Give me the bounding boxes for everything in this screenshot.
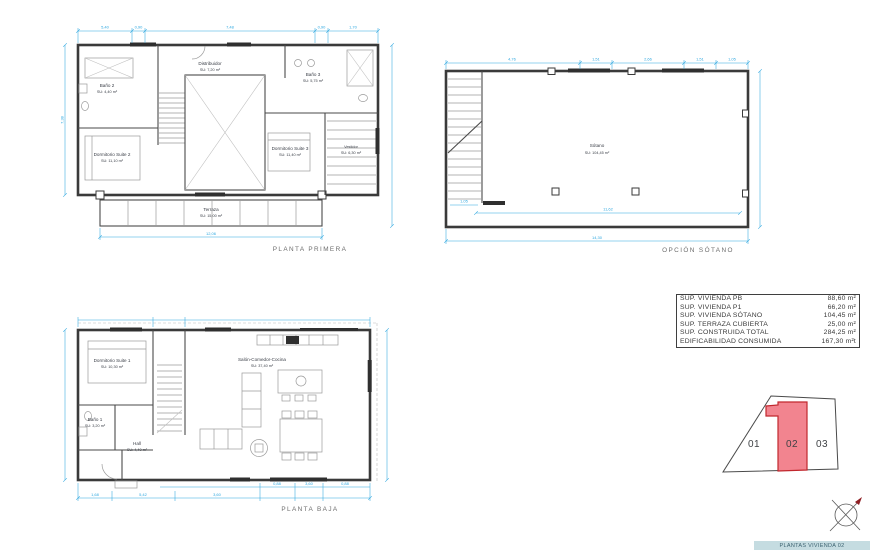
room-name: Dormitorio Suite 1 <box>94 358 131 363</box>
highlighted-plot-02 <box>766 402 807 471</box>
dim-label: 1,05 <box>728 57 737 62</box>
interior-walls <box>78 45 378 195</box>
dim-label: 7,38 <box>60 115 65 124</box>
dim-label: 0,88 <box>341 481 350 486</box>
room-area: SU: 15,00 m² <box>200 214 223 218</box>
dim-label: 12,06 <box>206 231 217 236</box>
structural-columns <box>548 68 749 197</box>
plot-01-label: 01 <box>748 439 760 450</box>
compass-rose <box>830 497 862 531</box>
window-lintels <box>130 43 380 197</box>
room-name: Distribuidor <box>198 61 222 66</box>
table-row: SUP. CONSTRUIDA TOTAL 284,25 m² <box>677 329 860 338</box>
room-area: SU: 10,30 m² <box>101 365 124 369</box>
room-area: SU: 4,40 m² <box>127 448 148 452</box>
dim-label: 3,60 <box>213 492 222 497</box>
row-value: 104,45 m² <box>809 312 859 321</box>
dim-label: 1,51 <box>592 57 601 62</box>
room-name: Salón-Comedor-Cocina <box>238 357 286 362</box>
room-area: SU: 104,45 m² <box>585 151 610 155</box>
dimension-lines <box>63 28 394 240</box>
room-name: Dormitorio Suite 2 <box>94 152 131 157</box>
dim-label: 7,48 <box>226 25 235 30</box>
plot-02-label: 02 <box>786 439 798 450</box>
row-value: 88,60 m² <box>809 295 859 304</box>
sheet-title-bar: PLANTAS VIVIENDA 02 <box>754 541 870 550</box>
dim-label: 2,66 <box>644 57 653 62</box>
plot-map-drawing: 01 02 03 <box>716 390 866 505</box>
dim-label: 14,30 <box>592 235 603 240</box>
row-label: SUP. VIVIENDA P1 <box>677 304 810 313</box>
kitchen-counter <box>257 335 338 345</box>
row-label: SUP. VIVIENDA SÓTANO <box>677 312 810 321</box>
table-row: SUP. VIVIENDA SÓTANO 104,45 m² <box>677 312 860 321</box>
room-area: SU: 5,75 m² <box>303 79 324 83</box>
opcion-sotano-drawing: 4,76 1,51 2,66 1,51 1,05 14,30 11,62 1,0… <box>440 55 770 260</box>
table-row: SUP. TERRAZA CUBIERTA 25,00 m² <box>677 321 860 330</box>
double-height-void <box>185 75 265 190</box>
row-value: 66,20 m² <box>809 304 859 313</box>
entry-porch <box>102 464 137 488</box>
plan-planta-primera: 5,40 0,90 7,48 0,90 1,70 7,38 12,06 Baño… <box>55 18 430 258</box>
kitchen-island <box>278 370 322 401</box>
room-area: SU: 7,20 m² <box>200 68 221 72</box>
dim-label: 1,05 <box>460 199 469 204</box>
row-value: 167,30 m²t <box>809 338 859 347</box>
dim-label: 1,70 <box>349 25 358 30</box>
room-name: Sótano <box>590 143 605 148</box>
table-row: EDIFICABILIDAD CONSUMIDA 167,30 m²t <box>677 338 860 347</box>
row-label: SUP. TERRAZA CUBIERTA <box>677 321 810 330</box>
dim-label: 3,60 <box>305 481 314 486</box>
row-value: 284,25 m² <box>809 329 859 338</box>
door-swing <box>192 46 205 59</box>
roof-overhang-outline <box>78 323 377 483</box>
row-label: EDIFICABILIDAD CONSUMIDA <box>677 338 810 347</box>
bathroom2-fixtures <box>79 84 89 111</box>
stairs-icon <box>448 79 505 205</box>
bed-suite2 <box>85 136 140 180</box>
interior-walls <box>78 330 185 480</box>
stairs-icon <box>158 93 185 143</box>
outer-walls <box>78 45 378 195</box>
room-name: Baño 1 <box>88 417 103 422</box>
dim-label: 1,68 <box>91 492 100 497</box>
table-row: SUP. VIVIENDA PB 88,60 m² <box>677 295 860 304</box>
bed-suite3 <box>268 133 310 171</box>
dimension-labels: 5,40 0,90 7,48 0,90 1,70 7,38 12,06 <box>60 25 358 237</box>
plan-title-sotano: OPCIÓN SÓTANO <box>662 245 734 254</box>
room-labels: Sótano SU: 104,45 m² <box>585 143 610 155</box>
room-name: Baño 3 <box>306 72 321 77</box>
sheet-title: PLANTAS VIVIENDA 02 <box>780 543 845 549</box>
room-name: Terraza <box>203 207 219 212</box>
room-area: SU: 3,20 m² <box>85 424 106 428</box>
dim-label: 1,51 <box>696 57 705 62</box>
dim-label: 5,40 <box>101 25 110 30</box>
planta-primera-drawing: 5,40 0,90 7,48 0,90 1,70 7,38 12,06 Baño… <box>55 18 430 258</box>
surface-summary-table: SUP. VIVIENDA PB 88,60 m² SUP. VIVIENDA … <box>676 294 860 348</box>
row-label: SUP. CONSTRUIDA TOTAL <box>677 329 810 338</box>
plot-location-map: 01 02 03 <box>716 390 866 505</box>
dim-label: 0,88 <box>273 481 282 486</box>
room-area: SU: 6,30 m² <box>341 151 362 155</box>
room-area: SU: 37,40 m² <box>251 364 274 368</box>
room-name: Vestidor <box>344 145 358 149</box>
dim-label: 5,42 <box>139 492 148 497</box>
dim-label: 4,76 <box>508 57 517 62</box>
dimension-labels: 4,76 1,51 2,66 1,51 1,05 14,30 11,62 1,0… <box>460 57 737 241</box>
planta-baja-drawing: 1,68 5,42 3,60 0,88 3,60 0,88 Dormitorio… <box>55 315 430 530</box>
row-value: 25,00 m² <box>809 321 859 330</box>
drawing-sheet: 5,40 0,90 7,48 0,90 1,70 7,38 12,06 Baño… <box>0 0 870 550</box>
room-area: SU: 11,10 m² <box>101 159 124 163</box>
closet <box>85 58 133 78</box>
sofa <box>200 373 261 449</box>
dimension-lines <box>63 317 389 501</box>
plot-03-label: 03 <box>816 439 828 450</box>
room-area: SU: 11,40 m² <box>279 153 302 157</box>
plan-planta-baja: 1,68 5,42 3,60 0,88 3,60 0,88 Dormitorio… <box>55 315 430 530</box>
plan-title-baja: PLANTA BAJA <box>281 506 338 513</box>
room-name: Dormitorio Suite 3 <box>272 146 309 151</box>
plan-title-primera: PLANTA PRIMERA <box>273 246 348 253</box>
row-label: SUP. VIVIENDA PB <box>677 295 810 304</box>
stairs-icon <box>157 365 182 433</box>
room-area: SU: 4,40 m² <box>97 90 118 94</box>
side-table <box>251 440 268 457</box>
dimension-labels: 1,68 5,42 3,60 0,88 3,60 0,88 <box>91 481 350 497</box>
plan-opcion-sotano: 4,76 1,51 2,66 1,51 1,05 14,30 11,62 1,0… <box>440 55 770 260</box>
dim-label: 0,90 <box>318 25 327 30</box>
room-name: Hall <box>133 441 141 446</box>
table-row: SUP. VIVIENDA P1 66,20 m² <box>677 304 860 313</box>
room-name: Baño 2 <box>100 83 115 88</box>
dim-label: 0,90 <box>135 25 144 30</box>
dining-table <box>280 411 322 460</box>
dim-label: 11,62 <box>603 207 613 212</box>
